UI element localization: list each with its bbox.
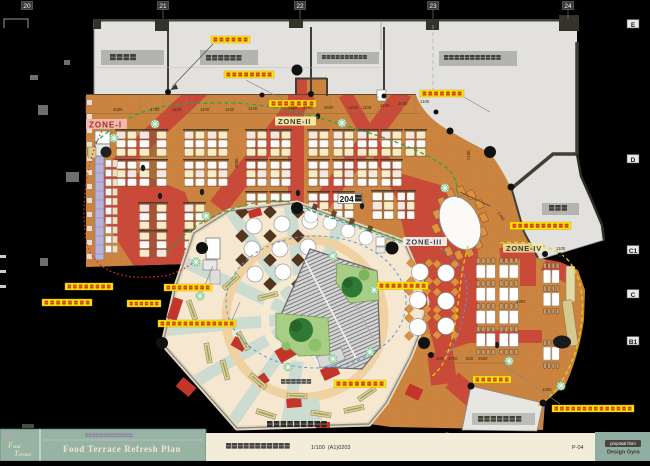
svg-text:B1: B1	[629, 339, 638, 346]
svg-text:2100: 2100	[466, 150, 471, 160]
svg-text:E: E	[631, 22, 636, 29]
svg-text:1300: 1300	[542, 387, 552, 392]
svg-text:D: D	[631, 157, 636, 164]
svg-text:1100: 1100	[420, 99, 430, 104]
svg-text:1/100 (A1)0203: 1/100 (A1)0203	[311, 445, 350, 451]
svg-text:2500: 2500	[478, 356, 488, 361]
svg-text:2600: 2600	[324, 105, 334, 110]
svg-text:Food Terrace Refresh Plan: Food Terrace Refresh Plan	[63, 444, 181, 454]
svg-text:ZONE-II: ZONE-II	[278, 117, 311, 126]
svg-text:1100: 1100	[200, 107, 210, 112]
svg-text:2000: 2000	[113, 107, 123, 112]
svg-text:2600: 2600	[398, 101, 408, 106]
svg-text:1100: 1100	[248, 106, 258, 111]
svg-text:24: 24	[564, 3, 572, 10]
svg-text:1100: 1100	[288, 105, 298, 110]
svg-text:1100: 1100	[225, 107, 235, 112]
svg-text:204: 204	[340, 194, 354, 204]
svg-text:1700: 1700	[150, 107, 160, 112]
svg-text:ZONE-III: ZONE-III	[406, 238, 442, 247]
svg-text:23: 23	[429, 3, 437, 10]
svg-text:1100: 1100	[380, 103, 390, 108]
svg-text:21: 21	[159, 3, 167, 10]
svg-text:1700: 1700	[448, 356, 458, 361]
svg-text:1382: 1382	[516, 299, 526, 304]
svg-text:1100: 1100	[172, 107, 182, 112]
svg-text:ZONE-IV: ZONE-IV	[506, 244, 542, 253]
svg-text:200: 200	[436, 356, 444, 361]
svg-text:C: C	[631, 292, 636, 299]
svg-text:P-04: P-04	[572, 445, 584, 451]
svg-text:22: 22	[296, 3, 304, 10]
svg-text:500: 500	[466, 356, 474, 361]
svg-text:1100: 1100	[362, 105, 372, 110]
svg-text:Design Gyro: Design Gyro	[607, 450, 640, 456]
svg-text:ZONE-I: ZONE-I	[89, 121, 122, 130]
svg-text:2200: 2200	[303, 105, 313, 110]
svg-text:3500: 3500	[234, 158, 239, 168]
svg-text:C1: C1	[629, 248, 638, 255]
svg-text:1200: 1200	[348, 105, 358, 110]
svg-text:20: 20	[23, 3, 31, 10]
svg-text:proposal from: proposal from	[610, 441, 636, 446]
svg-text:1100: 1100	[556, 246, 566, 251]
